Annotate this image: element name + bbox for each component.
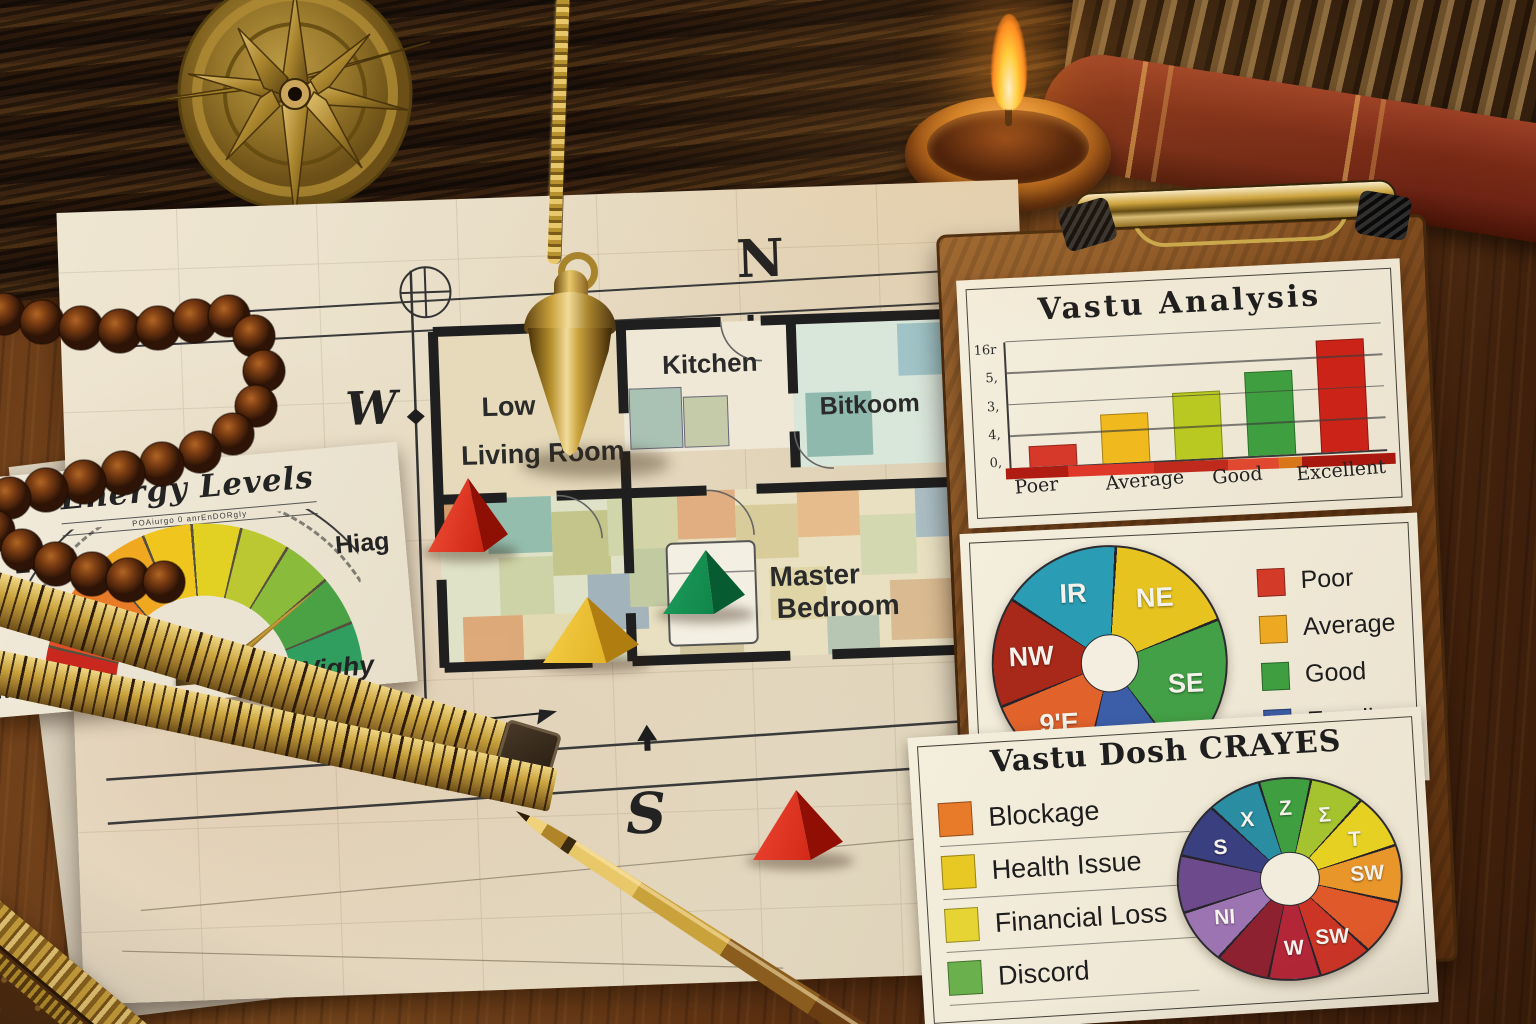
room-label-bathroom: Bitkoom (819, 389, 920, 420)
rudraksha-bead (143, 561, 185, 603)
north-label: N (735, 228, 785, 291)
legend-label: Blockage (987, 795, 1100, 833)
slice-label-Z: Z (1278, 797, 1292, 822)
south-label: S (625, 780, 668, 847)
bar-3 (1244, 370, 1296, 456)
legend-swatch (944, 907, 980, 943)
west-label: W (345, 380, 403, 436)
slice-label-SW: SW (1350, 861, 1385, 887)
south-arrow-icon (637, 724, 658, 751)
legend-swatch (1260, 661, 1289, 690)
west-diamond-icon (407, 408, 426, 425)
legend-row-Average: Average (1258, 608, 1405, 644)
rudraksha-beads (0, 276, 298, 616)
room-label-kitchen: Kitchen (662, 347, 758, 380)
x-label-Good: Good (1212, 463, 1264, 489)
bar-1 (1100, 412, 1150, 463)
slice-label-T: T (1348, 827, 1362, 852)
room-label-master-1: Master (769, 558, 860, 592)
rudraksha-bead (59, 306, 103, 350)
slice-label-SE: SE (1167, 667, 1204, 700)
legend-label: Financial Loss (994, 897, 1168, 938)
dosh-color-wheel: ZΣTSWSWWNISX (1171, 770, 1409, 987)
slice-label-X: X (1240, 808, 1255, 833)
compass-rose-icon (130, 0, 460, 234)
legend-label: Discord (997, 955, 1090, 992)
vastu-analysis-card: Vastu Analysis 16r5,3,4,0, PoerAverageGo… (956, 258, 1412, 528)
slice-label-Σ: Σ (1318, 804, 1332, 829)
slice-label-W: W (1283, 936, 1304, 961)
bar-chart-y-axis: 16r5,3,4,0, (973, 343, 1002, 472)
x-label-Poer: Poer (1013, 473, 1059, 499)
slice-label-NW: NW (1008, 640, 1054, 673)
dosh-legend: BlockageHealth IssueFinancial LossDiscor… (937, 779, 1199, 1006)
y-tick-label: 16r (973, 343, 996, 359)
green-pyramid (663, 550, 745, 614)
legend-swatch (937, 801, 973, 837)
donut-hole (1258, 850, 1321, 908)
legend-label: Good (1304, 657, 1366, 689)
rudraksha-bead (62, 460, 106, 504)
clip-grip-right (1354, 190, 1413, 242)
vastu-bar-chart: 16r5,3,4,0, PoerAverageGoodExcellent (999, 323, 1388, 492)
legend-swatch (947, 960, 983, 996)
scene: N W (0, 0, 1536, 1024)
x-label-Excellent: Excellent (1296, 456, 1387, 486)
bar-0 (1029, 444, 1078, 468)
gauge-label-high: Hiag (334, 527, 391, 561)
x-label-Average: Average (1105, 466, 1185, 495)
pendulum-bob (524, 252, 616, 456)
slice-label-SW: SW (1315, 924, 1350, 950)
slice-label-NI: NI (1214, 905, 1236, 930)
rudraksha-bead (98, 309, 142, 353)
y-tick-label: 0, (989, 456, 1002, 472)
room-label-master-2: Bedroom (776, 589, 900, 624)
rudraksha-bead (140, 442, 184, 486)
rudraksha-bead (101, 451, 145, 495)
bar-chart-plot (1003, 323, 1387, 470)
y-tick-label: 3, (986, 399, 999, 415)
analysis-title: Vastu Analysis (957, 274, 1402, 331)
donut-hole (1080, 633, 1140, 693)
slice-label-NE: NE (1135, 582, 1174, 615)
red-pyramid-small (753, 790, 843, 860)
legend-swatch (1258, 614, 1287, 643)
rudraksha-bead (24, 468, 68, 512)
slice-label-S: S (1213, 836, 1228, 861)
y-tick-label: 5, (985, 371, 998, 387)
legend-label: Health Issue (991, 845, 1143, 885)
slice-label-IR: IR (1059, 577, 1087, 609)
red-pyramid-large (428, 478, 508, 552)
legend-label: Poor (1300, 564, 1354, 595)
rudraksha-bead (20, 300, 64, 344)
legend-row-Poor: Poor (1256, 561, 1403, 597)
legend-swatch (1256, 567, 1285, 596)
y-tick-label: 4, (988, 427, 1001, 443)
vastu-dosh-card: Vastu Dosh CRAYES BlockageHealth IssueFi… (907, 707, 1438, 1024)
legend-row-Good: Good (1260, 655, 1407, 691)
legend-label: Average (1302, 609, 1396, 642)
yellow-pyramid (543, 597, 639, 663)
rudraksha-bead (179, 431, 221, 473)
legend-swatch (941, 854, 977, 890)
